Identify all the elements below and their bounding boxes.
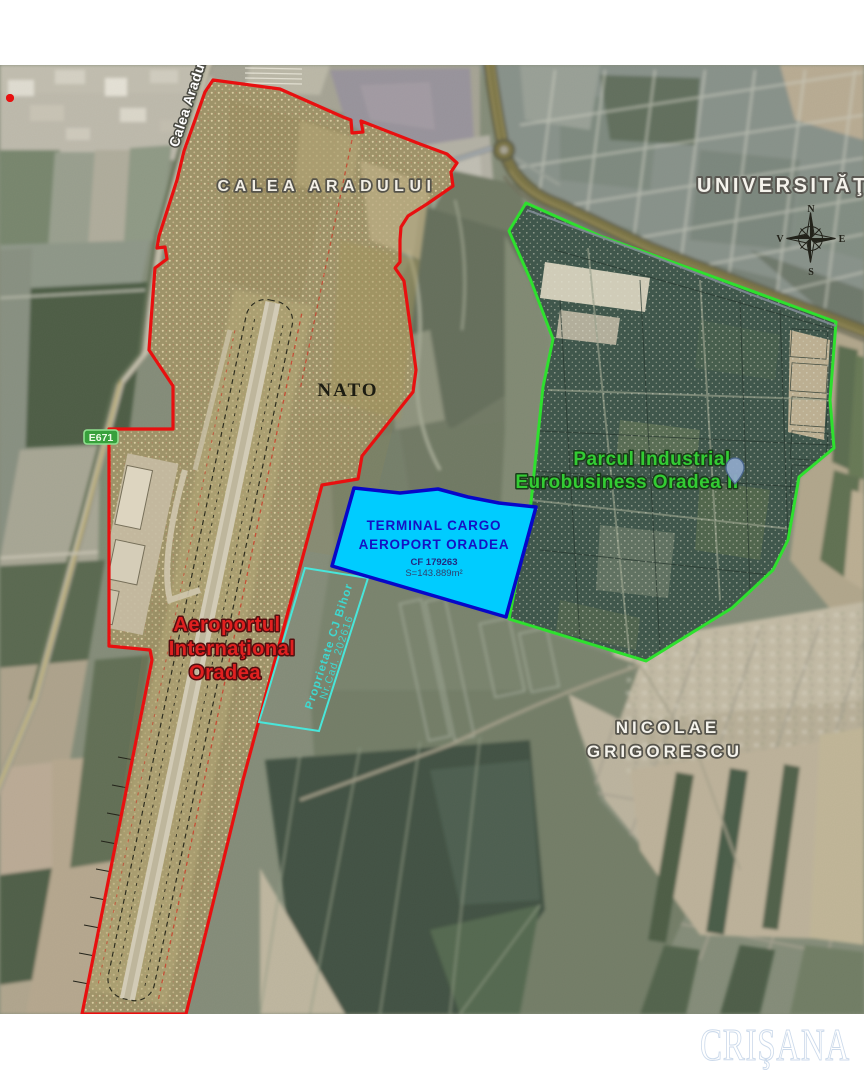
svg-text:E671: E671 [89,432,114,444]
svg-text:CRIŞANA: CRIŞANA [700,1019,850,1070]
svg-text:Eurobusiness Oradea II: Eurobusiness Oradea II [515,472,738,493]
svg-text:NATO: NATO [317,380,378,401]
svg-text:CALEA ARADULUI: CALEA ARADULUI [218,178,437,195]
svg-text:S=143.889m²: S=143.889m² [405,568,462,579]
svg-text:Internaţional: Internaţional [169,638,296,660]
svg-text:V: V [776,234,784,245]
svg-text:NICOLAE: NICOLAE [616,718,721,737]
svg-text:CF 179263: CF 179263 [410,557,457,568]
svg-text:Aeroportul: Aeroportul [173,614,280,636]
svg-text:Parcul Industrial: Parcul Industrial [573,449,730,470]
svg-text:Oradea: Oradea [189,662,261,684]
svg-text:E: E [839,234,846,245]
svg-text:S: S [808,267,814,278]
svg-text:TERMINAL CARGO: TERMINAL CARGO [367,518,502,533]
svg-text:GRIGORESCU: GRIGORESCU [587,742,743,761]
svg-text:AEROPORT ORADEA: AEROPORT ORADEA [359,537,510,552]
svg-text:N: N [807,204,815,215]
svg-text:UNIVERSITĂŢII: UNIVERSITĂŢII [697,174,864,197]
